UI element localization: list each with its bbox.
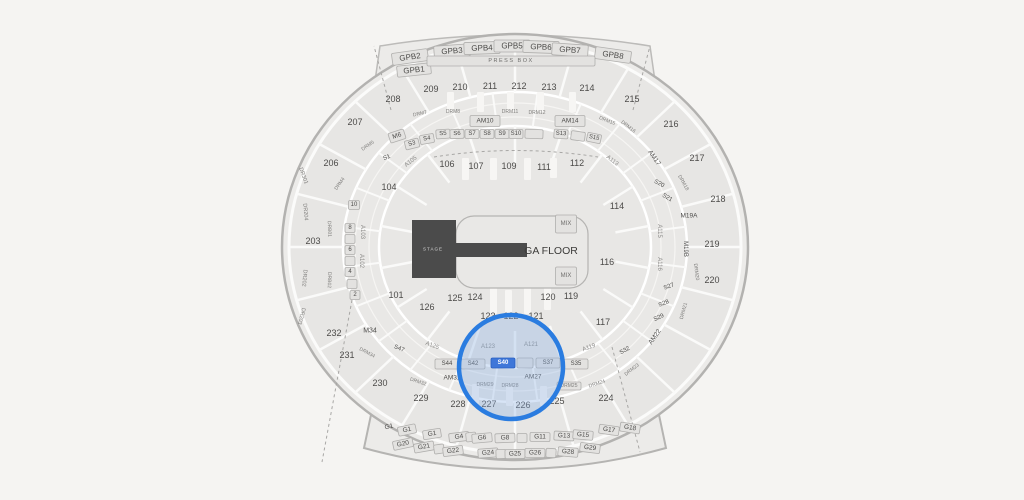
section-box[interactable]	[345, 257, 355, 266]
label-111[interactable]: 111	[537, 162, 551, 172]
label-124[interactable]: 124	[467, 292, 482, 302]
label-text: S6	[453, 131, 461, 137]
section-box-outline	[345, 257, 355, 266]
section-box-outline	[345, 235, 355, 244]
label-text: GPB6	[530, 42, 552, 52]
label-G26[interactable]: G26	[525, 448, 545, 457]
label-text: MIX	[561, 273, 572, 279]
label-text: 230	[372, 378, 387, 388]
label-text: 112	[570, 158, 584, 168]
label-text: S40	[498, 360, 509, 366]
section-box-outline	[525, 129, 543, 139]
label-G24[interactable]: G24	[478, 448, 499, 458]
label-text: 104	[381, 182, 396, 192]
label-text: 119	[564, 291, 578, 301]
label-text: 207	[347, 117, 362, 127]
tunnel-slot	[537, 92, 544, 112]
label-text: G6	[477, 434, 487, 442]
label-text: 109	[501, 161, 516, 171]
label-text: 203	[305, 236, 320, 246]
label-224[interactable]: 224	[598, 393, 613, 403]
label-text: 218	[710, 194, 725, 204]
label-text: DRM8	[446, 109, 460, 115]
ga-floor-label: GA FLOOR	[524, 245, 578, 257]
label-text: 214	[579, 83, 594, 93]
label-G13[interactable]: G13	[554, 431, 574, 441]
label-G29[interactable]: G29	[580, 442, 601, 453]
label-text: G24	[482, 449, 495, 457]
label-S13[interactable]: S13	[554, 129, 569, 139]
label-text: 117	[596, 317, 610, 327]
label-text: GPB7	[559, 45, 581, 56]
label-text: 116	[600, 257, 614, 267]
label-S35[interactable]: S35	[564, 359, 588, 369]
label-S7[interactable]: S7	[465, 130, 479, 139]
label-text: 219	[704, 239, 719, 249]
seating-map: GPB2GPB3GPB4GPB5GPB6GPB7GPB8GPB1PRESS BO…	[0, 0, 1024, 500]
label-M19B[interactable]: M19B	[682, 241, 688, 257]
stage-runway	[454, 243, 527, 257]
label-text: G28	[562, 448, 575, 456]
label-text: 210	[452, 82, 467, 92]
label-text: A115	[656, 224, 662, 238]
section-box-outline	[347, 280, 357, 289]
label-text: S5	[439, 131, 447, 138]
label-S8[interactable]: S8	[480, 130, 494, 139]
label-text: GPB4	[471, 43, 493, 53]
label-215[interactable]: 215	[624, 94, 639, 104]
label-DRB02[interactable]: DRB02	[326, 272, 333, 289]
section-box[interactable]	[525, 129, 543, 139]
stage-label: STAGE	[423, 247, 443, 252]
label-G8[interactable]: G8	[495, 433, 515, 443]
label-S10[interactable]: S10	[509, 130, 523, 139]
section-S40-highlighted[interactable]: S40	[491, 358, 515, 368]
label-text: G15	[577, 431, 590, 439]
label-text: DRB01	[326, 221, 333, 238]
label-DRM11[interactable]: DRM11	[502, 109, 519, 115]
label-text: 124	[467, 292, 482, 302]
label-A115: A115	[656, 224, 662, 238]
label-text: S13	[555, 131, 567, 138]
label-text: 10	[351, 202, 358, 208]
label-218[interactable]: 218	[710, 194, 725, 204]
label-text: S7	[468, 131, 476, 137]
label-210[interactable]: 210	[452, 82, 467, 92]
label-229[interactable]: 229	[413, 393, 428, 403]
label-209[interactable]: 209	[423, 84, 438, 94]
label-text: 114	[610, 201, 624, 211]
label-213[interactable]: 213	[541, 82, 556, 92]
label-126[interactable]: 126	[419, 302, 434, 312]
label-109[interactable]: 109	[501, 161, 516, 171]
tunnel-slot	[477, 92, 484, 112]
label-text: 120	[540, 292, 555, 302]
label-119[interactable]: 119	[564, 291, 578, 301]
label-S5[interactable]: S5	[436, 129, 451, 139]
label-104[interactable]: 104	[381, 182, 396, 192]
label-120[interactable]: 120	[540, 292, 555, 302]
label-101[interactable]: 101	[388, 290, 403, 300]
label-text: 224	[598, 393, 613, 403]
label-S4[interactable]: S4	[419, 133, 434, 144]
tunnel-slot	[550, 158, 557, 178]
label-text: PRESS BOX	[488, 58, 533, 64]
section-box[interactable]	[347, 280, 357, 289]
label-text: 216	[663, 119, 678, 129]
section-box-outline	[546, 448, 556, 458]
label-G15[interactable]: G15	[573, 430, 594, 441]
section-box-outline	[517, 434, 527, 443]
label-text: 212	[511, 81, 526, 91]
label-text: 213	[541, 82, 556, 92]
label-text: S44	[442, 361, 453, 367]
label-text: S10	[511, 131, 522, 137]
section-box[interactable]	[345, 235, 355, 244]
label-text: 229	[413, 393, 428, 403]
label-10[interactable]: 10	[349, 201, 360, 210]
label-G6[interactable]: G6	[472, 433, 493, 444]
label-DRM12[interactable]: DRM12	[529, 110, 546, 116]
label-230[interactable]: 230	[372, 378, 387, 388]
label-text: 106	[439, 159, 454, 169]
label-text: 111	[537, 162, 551, 172]
label-text: G4	[454, 433, 464, 441]
label-107[interactable]: 107	[468, 161, 483, 171]
label-208[interactable]: 208	[385, 94, 400, 104]
label-6[interactable]: 6	[345, 246, 355, 255]
label-text: DRM11	[502, 109, 519, 115]
label-text: AM10	[477, 118, 494, 125]
label-text: 220	[704, 275, 719, 285]
label-117[interactable]: 117	[596, 317, 610, 327]
label-106[interactable]: 106	[439, 159, 454, 169]
label-DRB01[interactable]: DRB01	[326, 221, 333, 238]
label-DRM8[interactable]: DRM8	[446, 109, 460, 115]
tunnel-slot	[524, 158, 531, 180]
label-text: M34	[363, 328, 377, 335]
label-207[interactable]: 207	[347, 117, 362, 127]
label-text: MIX	[561, 221, 572, 227]
label-206[interactable]: 206	[323, 158, 338, 168]
label-220[interactable]: 220	[704, 275, 719, 285]
label-text: S35	[571, 361, 582, 367]
label-125[interactable]: 125	[447, 293, 462, 303]
label-211[interactable]: 211	[483, 81, 497, 91]
label-G28[interactable]: G28	[558, 447, 579, 458]
label-S9[interactable]: S9	[495, 130, 509, 139]
section-box[interactable]	[517, 434, 527, 443]
label-203[interactable]: 203	[305, 236, 320, 246]
label-text: A116	[656, 257, 662, 271]
section-box[interactable]	[546, 448, 556, 458]
label-AM10[interactable]: AM10	[470, 116, 500, 127]
label-text: G13	[558, 432, 571, 440]
label-G22[interactable]: G22	[443, 445, 464, 456]
label-text: AM14	[562, 118, 579, 125]
label-G11[interactable]: G11	[530, 432, 550, 441]
label-114[interactable]: 114	[610, 201, 624, 211]
label-text: 208	[385, 94, 400, 104]
label-231[interactable]: 231	[339, 350, 354, 360]
label-text: DRM25	[561, 383, 578, 389]
label-text: 125	[447, 293, 462, 303]
label-text: 215	[624, 94, 639, 104]
label-8[interactable]: 8	[345, 224, 355, 233]
label-text: 232	[326, 328, 341, 338]
section-box[interactable]	[570, 131, 585, 142]
label-text: A102	[358, 254, 364, 269]
label-116[interactable]: 116	[600, 257, 614, 267]
label-M34[interactable]: M34	[363, 328, 377, 335]
label-text: 101	[388, 290, 403, 300]
label-232[interactable]: 232	[326, 328, 341, 338]
label-4[interactable]: 4	[345, 268, 355, 277]
label-A103: A103	[359, 225, 365, 240]
label-AM14[interactable]: AM14	[555, 116, 585, 127]
label-MIX: MIX	[556, 267, 577, 285]
label-text: G1	[427, 430, 437, 438]
label-text: DRM12	[529, 110, 546, 116]
label-text: 211	[483, 81, 497, 91]
label-text: S9	[498, 131, 506, 137]
label-text: 228	[450, 399, 465, 409]
label-text: GPB5	[501, 42, 523, 51]
tunnel-slot	[569, 92, 576, 112]
label-112[interactable]: 112	[570, 158, 584, 168]
label-text: 107	[468, 161, 483, 171]
label-212[interactable]: 212	[511, 81, 526, 91]
label-text: 206	[323, 158, 338, 168]
label-M19A[interactable]: M19A	[681, 213, 699, 220]
label-text: 209	[423, 84, 438, 94]
label-text: G25	[509, 450, 522, 457]
label-text: G11	[534, 433, 546, 440]
label-MIX: MIX	[556, 215, 577, 233]
label-text: M19B	[682, 241, 688, 257]
label-text: S8	[483, 131, 491, 137]
section-box-outline	[570, 131, 585, 142]
label-2[interactable]: 2	[350, 291, 360, 300]
label-text: GPB3	[441, 46, 463, 57]
label-text: A103	[359, 225, 365, 240]
label-text: G26	[529, 449, 542, 456]
label-216[interactable]: 216	[663, 119, 678, 129]
label-text: 126	[419, 302, 434, 312]
label-text: G8	[501, 434, 510, 441]
label-228[interactable]: 228	[450, 399, 465, 409]
label-214[interactable]: 214	[579, 83, 594, 93]
label-S44[interactable]: S44	[435, 359, 459, 369]
label-text: 217	[689, 153, 704, 163]
label-GPB7[interactable]: GPB7	[552, 43, 589, 57]
label-text: 231	[339, 350, 354, 360]
label-217[interactable]: 217	[689, 153, 704, 163]
label-A102: A102	[358, 254, 364, 269]
tunnel-slot	[490, 158, 497, 180]
label-G25[interactable]: G25	[505, 449, 525, 458]
label-219[interactable]: 219	[704, 239, 719, 249]
label-S6[interactable]: S6	[450, 129, 464, 138]
label-A116: A116	[656, 257, 662, 271]
label-PRESS-BOX: PRESS BOX	[427, 56, 595, 66]
label-text: M19A	[681, 213, 699, 220]
label-text: DRB02	[326, 272, 333, 289]
